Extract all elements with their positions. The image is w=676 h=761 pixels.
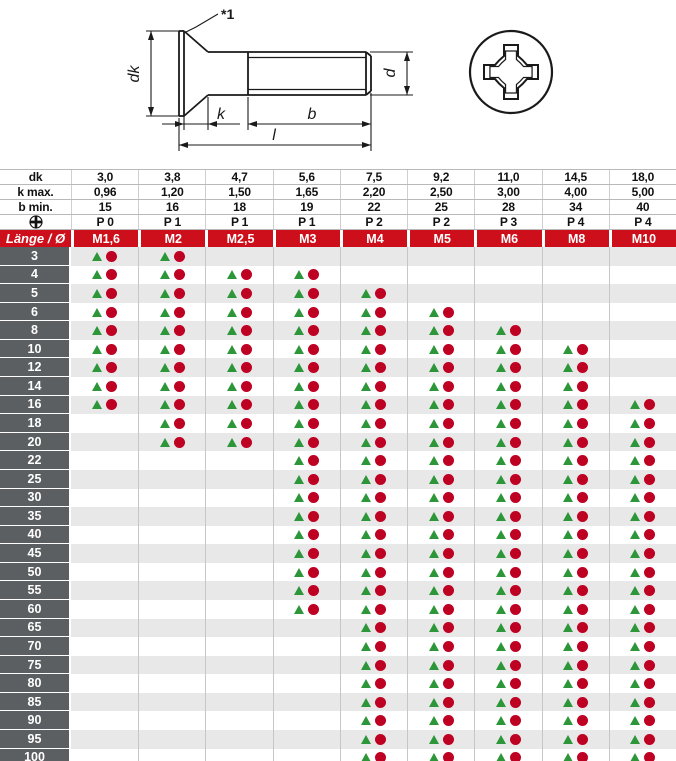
triangle-marker — [563, 456, 573, 465]
availability-cell — [71, 266, 138, 285]
availability-cell — [273, 693, 340, 712]
circle-marker — [375, 604, 386, 615]
circle-marker — [577, 362, 588, 373]
triangle-marker — [160, 400, 170, 409]
availability-cell — [273, 749, 340, 761]
spec-label-phillips — [0, 215, 71, 229]
triangle-marker — [630, 698, 640, 707]
dim-label-b: b — [308, 106, 317, 123]
availability-cell — [273, 526, 340, 545]
availability-cell — [542, 451, 609, 470]
triangle-marker — [227, 326, 237, 335]
availability-cell — [407, 414, 474, 433]
circle-marker — [375, 307, 386, 318]
availability-cell — [205, 711, 272, 730]
triangle-marker — [630, 400, 640, 409]
triangle-marker — [361, 326, 371, 335]
spec-label-dk: dk — [0, 170, 71, 184]
triangle-marker — [630, 419, 640, 428]
circle-marker — [577, 344, 588, 355]
triangle-marker — [630, 530, 640, 539]
availability-cell — [474, 489, 541, 508]
circle-marker — [443, 622, 454, 633]
availability-cell — [138, 581, 205, 600]
triangle-marker — [227, 308, 237, 317]
availability-cell — [340, 637, 407, 656]
availability-cell — [542, 674, 609, 693]
spec-value: 18,0 — [609, 170, 676, 184]
triangle-marker — [429, 716, 439, 725]
availability-cell — [71, 526, 138, 545]
spec-value: 3,00 — [474, 185, 541, 199]
triangle-marker — [630, 549, 640, 558]
availability-cell — [71, 581, 138, 600]
availability-cell — [138, 563, 205, 582]
availability-cell — [542, 730, 609, 749]
table-row-length-90: 90 — [0, 711, 676, 730]
circle-marker — [308, 567, 319, 578]
availability-cell — [407, 544, 474, 563]
availability-cell — [474, 284, 541, 303]
availability-cell — [609, 247, 676, 266]
dim-label-l: l — [272, 127, 276, 144]
length-label: 80 — [0, 674, 71, 693]
table-row-length-5: 5 — [0, 284, 676, 303]
length-label: 20 — [0, 433, 71, 452]
triangle-marker — [227, 419, 237, 428]
length-label: 18 — [0, 414, 71, 433]
dim-label-d: d — [382, 67, 399, 77]
triangle-marker — [294, 308, 304, 317]
triangle-marker — [563, 605, 573, 614]
availability-cell — [71, 433, 138, 452]
triangle-marker — [361, 438, 371, 447]
triangle-marker — [496, 753, 506, 761]
triangle-marker — [496, 326, 506, 335]
triangle-marker — [160, 382, 170, 391]
availability-cell — [609, 600, 676, 619]
availability-cell — [407, 637, 474, 656]
triangle-marker — [496, 586, 506, 595]
triangle-marker — [361, 753, 371, 761]
availability-cell — [542, 749, 609, 761]
availability-cell — [340, 730, 407, 749]
circle-marker — [443, 381, 454, 392]
circle-marker — [577, 418, 588, 429]
table-row-length-12: 12 — [0, 358, 676, 377]
triangle-marker — [361, 642, 371, 651]
availability-cell — [273, 470, 340, 489]
availability-table-body: 3456810121416182022253035404550556065707… — [0, 247, 676, 761]
availability-cell — [138, 489, 205, 508]
availability-cell — [407, 451, 474, 470]
circle-marker — [443, 399, 454, 410]
triangle-marker — [563, 753, 573, 761]
availability-cell — [474, 470, 541, 489]
circle-marker — [308, 418, 319, 429]
availability-cell — [205, 414, 272, 433]
spec-value: 2,50 — [407, 185, 474, 199]
availability-cell — [273, 340, 340, 359]
triangle-marker — [294, 326, 304, 335]
triangle-marker — [227, 289, 237, 298]
availability-cell — [542, 433, 609, 452]
circle-marker — [443, 697, 454, 708]
triangle-marker — [496, 456, 506, 465]
availability-cell — [542, 247, 609, 266]
dim-label-dk: dk — [126, 65, 143, 83]
availability-cell — [71, 730, 138, 749]
circle-marker — [510, 511, 521, 522]
circle-marker — [577, 437, 588, 448]
triangle-marker — [630, 623, 640, 632]
note-label: *1 — [221, 6, 234, 22]
triangle-marker — [361, 735, 371, 744]
dimension-lines — [146, 14, 413, 151]
circle-marker — [443, 678, 454, 689]
table-row-length-60: 60 — [0, 600, 676, 619]
availability-cell — [474, 581, 541, 600]
technical-drawing: dk k b l d *1 — [0, 0, 676, 164]
triangle-marker — [160, 438, 170, 447]
triangle-marker — [630, 735, 640, 744]
circle-marker — [308, 474, 319, 485]
triangle-marker — [227, 270, 237, 279]
availability-cell — [542, 637, 609, 656]
triangle-marker — [361, 605, 371, 614]
circle-marker — [106, 362, 117, 373]
circle-marker — [577, 715, 588, 726]
triangle-marker — [361, 512, 371, 521]
triangle-marker — [496, 400, 506, 409]
availability-cell — [407, 247, 474, 266]
availability-cell — [71, 321, 138, 340]
availability-cell — [205, 674, 272, 693]
triangle-marker — [630, 493, 640, 502]
triangle-marker — [496, 512, 506, 521]
spec-value: P 2 — [340, 215, 407, 229]
triangle-marker — [294, 493, 304, 502]
availability-cell — [609, 433, 676, 452]
circle-marker — [174, 288, 185, 299]
triangle-marker — [429, 623, 439, 632]
availability-cell — [138, 656, 205, 675]
circle-marker — [443, 604, 454, 615]
catalog-page: dk k b l d *1 dk3,03,84,75,67,59,211,014… — [0, 0, 676, 761]
circle-marker — [375, 288, 386, 299]
table-row-length-6: 6 — [0, 303, 676, 322]
availability-cell — [474, 266, 541, 285]
length-label: 40 — [0, 526, 71, 545]
triangle-marker — [429, 586, 439, 595]
spec-value: 1,20 — [138, 185, 205, 199]
phillips-icon — [29, 215, 43, 229]
circle-marker — [375, 660, 386, 671]
length-label: 16 — [0, 396, 71, 415]
circle-marker — [241, 325, 252, 336]
availability-cell — [407, 711, 474, 730]
spec-value: P 2 — [407, 215, 474, 229]
triangle-marker — [294, 289, 304, 298]
availability-cell — [205, 247, 272, 266]
triangle-marker — [160, 308, 170, 317]
table-row-length-100: 100 — [0, 749, 676, 761]
spec-value: 40 — [609, 200, 676, 214]
circle-marker — [644, 697, 655, 708]
availability-cell — [609, 396, 676, 415]
circle-marker — [308, 511, 319, 522]
availability-cell — [71, 656, 138, 675]
circle-marker — [510, 752, 521, 761]
availability-cell — [609, 711, 676, 730]
triangle-marker — [429, 568, 439, 577]
circle-marker — [577, 641, 588, 652]
triangle-marker — [294, 400, 304, 409]
availability-cell — [474, 247, 541, 266]
availability-cell — [71, 711, 138, 730]
triangle-marker — [630, 661, 640, 670]
triangle-marker — [361, 363, 371, 372]
availability-cell — [340, 451, 407, 470]
availability-cell — [273, 507, 340, 526]
triangle-marker — [92, 289, 102, 298]
triangle-marker — [563, 586, 573, 595]
circle-marker — [577, 752, 588, 761]
circle-marker — [443, 660, 454, 671]
circle-marker — [644, 474, 655, 485]
size-column-header: M2 — [138, 230, 205, 247]
availability-cell — [340, 581, 407, 600]
availability-cell — [609, 321, 676, 340]
availability-cell — [474, 340, 541, 359]
circle-marker — [577, 511, 588, 522]
availability-cell — [609, 581, 676, 600]
triangle-marker — [361, 679, 371, 688]
availability-cell — [340, 377, 407, 396]
availability-cell — [474, 414, 541, 433]
availability-cell — [71, 396, 138, 415]
availability-cell — [138, 544, 205, 563]
circle-marker — [308, 529, 319, 540]
availability-cell — [340, 656, 407, 675]
availability-cell — [71, 600, 138, 619]
triangle-marker — [294, 345, 304, 354]
triangle-marker — [563, 345, 573, 354]
circle-marker — [577, 474, 588, 485]
circle-marker — [308, 381, 319, 392]
triangle-marker — [563, 475, 573, 484]
triangle-marker — [630, 475, 640, 484]
table-row-length-3: 3 — [0, 247, 676, 266]
triangle-marker — [361, 549, 371, 558]
circle-marker — [443, 362, 454, 373]
circle-marker — [443, 307, 454, 318]
triangle-marker — [563, 512, 573, 521]
availability-cell — [542, 544, 609, 563]
circle-marker — [443, 455, 454, 466]
availability-cell — [205, 526, 272, 545]
triangle-marker — [294, 438, 304, 447]
circle-marker — [308, 455, 319, 466]
triangle-marker — [429, 753, 439, 761]
availability-cell — [474, 451, 541, 470]
availability-cell — [205, 730, 272, 749]
availability-cell — [340, 674, 407, 693]
availability-cell — [273, 489, 340, 508]
circle-marker — [443, 437, 454, 448]
spec-value: 19 — [273, 200, 340, 214]
triangle-marker — [361, 382, 371, 391]
availability-cell — [71, 377, 138, 396]
triangle-marker — [429, 308, 439, 317]
triangle-marker — [361, 400, 371, 409]
availability-cell — [71, 507, 138, 526]
availability-cell — [542, 619, 609, 638]
table-row-length-8: 8 — [0, 321, 676, 340]
availability-cell — [340, 433, 407, 452]
availability-cell — [609, 656, 676, 675]
availability-cell — [138, 284, 205, 303]
circle-marker — [510, 362, 521, 373]
triangle-marker — [361, 419, 371, 428]
availability-cell — [205, 507, 272, 526]
circle-marker — [644, 548, 655, 559]
availability-cell — [407, 284, 474, 303]
length-label: 25 — [0, 470, 71, 489]
circle-marker — [375, 715, 386, 726]
circle-marker — [308, 269, 319, 280]
circle-marker — [375, 325, 386, 336]
circle-marker — [443, 344, 454, 355]
triangle-marker — [294, 456, 304, 465]
size-column-header: M8 — [542, 230, 609, 247]
availability-cell — [205, 284, 272, 303]
circle-marker — [308, 399, 319, 410]
table-row-length-10: 10 — [0, 340, 676, 359]
triangle-marker — [630, 716, 640, 725]
table-row-length-45: 45 — [0, 544, 676, 563]
triangle-marker — [227, 400, 237, 409]
triangle-marker — [294, 568, 304, 577]
triangle-marker — [160, 252, 170, 261]
availability-cell — [71, 284, 138, 303]
triangle-marker — [92, 270, 102, 279]
triangle-marker — [429, 345, 439, 354]
availability-cell — [205, 266, 272, 285]
availability-cell — [609, 637, 676, 656]
circle-marker — [174, 307, 185, 318]
triangle-marker — [563, 419, 573, 428]
triangle-marker — [630, 753, 640, 761]
circle-marker — [106, 381, 117, 392]
circle-marker — [375, 474, 386, 485]
availability-cell — [340, 340, 407, 359]
circle-marker — [510, 567, 521, 578]
triangle-marker — [429, 438, 439, 447]
circle-marker — [375, 752, 386, 761]
triangle-marker — [294, 475, 304, 484]
triangle-marker — [227, 345, 237, 354]
circle-marker — [241, 362, 252, 373]
circle-marker — [577, 734, 588, 745]
triangle-marker — [429, 549, 439, 558]
length-label: 3 — [0, 247, 71, 266]
length-label: 35 — [0, 507, 71, 526]
availability-cell — [407, 396, 474, 415]
triangle-marker — [361, 493, 371, 502]
circle-marker — [510, 437, 521, 448]
availability-cell — [71, 451, 138, 470]
availability-cell — [273, 730, 340, 749]
circle-marker — [644, 585, 655, 596]
availability-cell — [340, 321, 407, 340]
spec-value: 3,0 — [71, 170, 138, 184]
phillips-head-view — [470, 31, 552, 113]
spec-value: 0,96 — [71, 185, 138, 199]
circle-marker — [510, 678, 521, 689]
triangle-marker — [429, 698, 439, 707]
triangle-marker — [496, 382, 506, 391]
triangle-marker — [429, 456, 439, 465]
circle-marker — [577, 622, 588, 633]
triangle-marker — [563, 716, 573, 725]
triangle-marker — [429, 642, 439, 651]
circle-marker — [644, 455, 655, 466]
availability-cell — [340, 600, 407, 619]
spec-value: 14,5 — [542, 170, 609, 184]
availability-cell — [542, 693, 609, 712]
spec-row-b-min: b min.151618192225283440 — [0, 200, 676, 215]
length-label: 22 — [0, 451, 71, 470]
availability-cell — [542, 377, 609, 396]
length-label: 100 — [0, 749, 71, 761]
triangle-marker — [361, 568, 371, 577]
circle-marker — [644, 418, 655, 429]
triangle-marker — [160, 289, 170, 298]
length-label: 95 — [0, 730, 71, 749]
availability-cell — [609, 340, 676, 359]
triangle-marker — [496, 549, 506, 558]
availability-cell — [71, 619, 138, 638]
spec-value: P 1 — [205, 215, 272, 229]
availability-cell — [71, 340, 138, 359]
circle-marker — [577, 548, 588, 559]
triangle-marker — [227, 438, 237, 447]
circle-marker — [375, 362, 386, 373]
spec-value: 11,0 — [474, 170, 541, 184]
circle-marker — [644, 437, 655, 448]
availability-cell — [542, 358, 609, 377]
availability-cell — [205, 470, 272, 489]
spec-value: 7,5 — [340, 170, 407, 184]
size-column-header: M6 — [474, 230, 541, 247]
circle-marker — [174, 381, 185, 392]
circle-marker — [443, 548, 454, 559]
availability-cell — [340, 507, 407, 526]
circle-marker — [443, 752, 454, 761]
triangle-marker — [92, 400, 102, 409]
availability-cell — [474, 396, 541, 415]
circle-marker — [510, 585, 521, 596]
availability-cell — [138, 507, 205, 526]
circle-marker — [375, 437, 386, 448]
availability-cell — [474, 544, 541, 563]
availability-cell — [542, 266, 609, 285]
circle-marker — [375, 399, 386, 410]
triangle-marker — [563, 661, 573, 670]
spec-row-phillips: P 0P 1P 1P 1P 2P 2P 3P 4P 4 — [0, 215, 676, 230]
spec-value: 9,2 — [407, 170, 474, 184]
